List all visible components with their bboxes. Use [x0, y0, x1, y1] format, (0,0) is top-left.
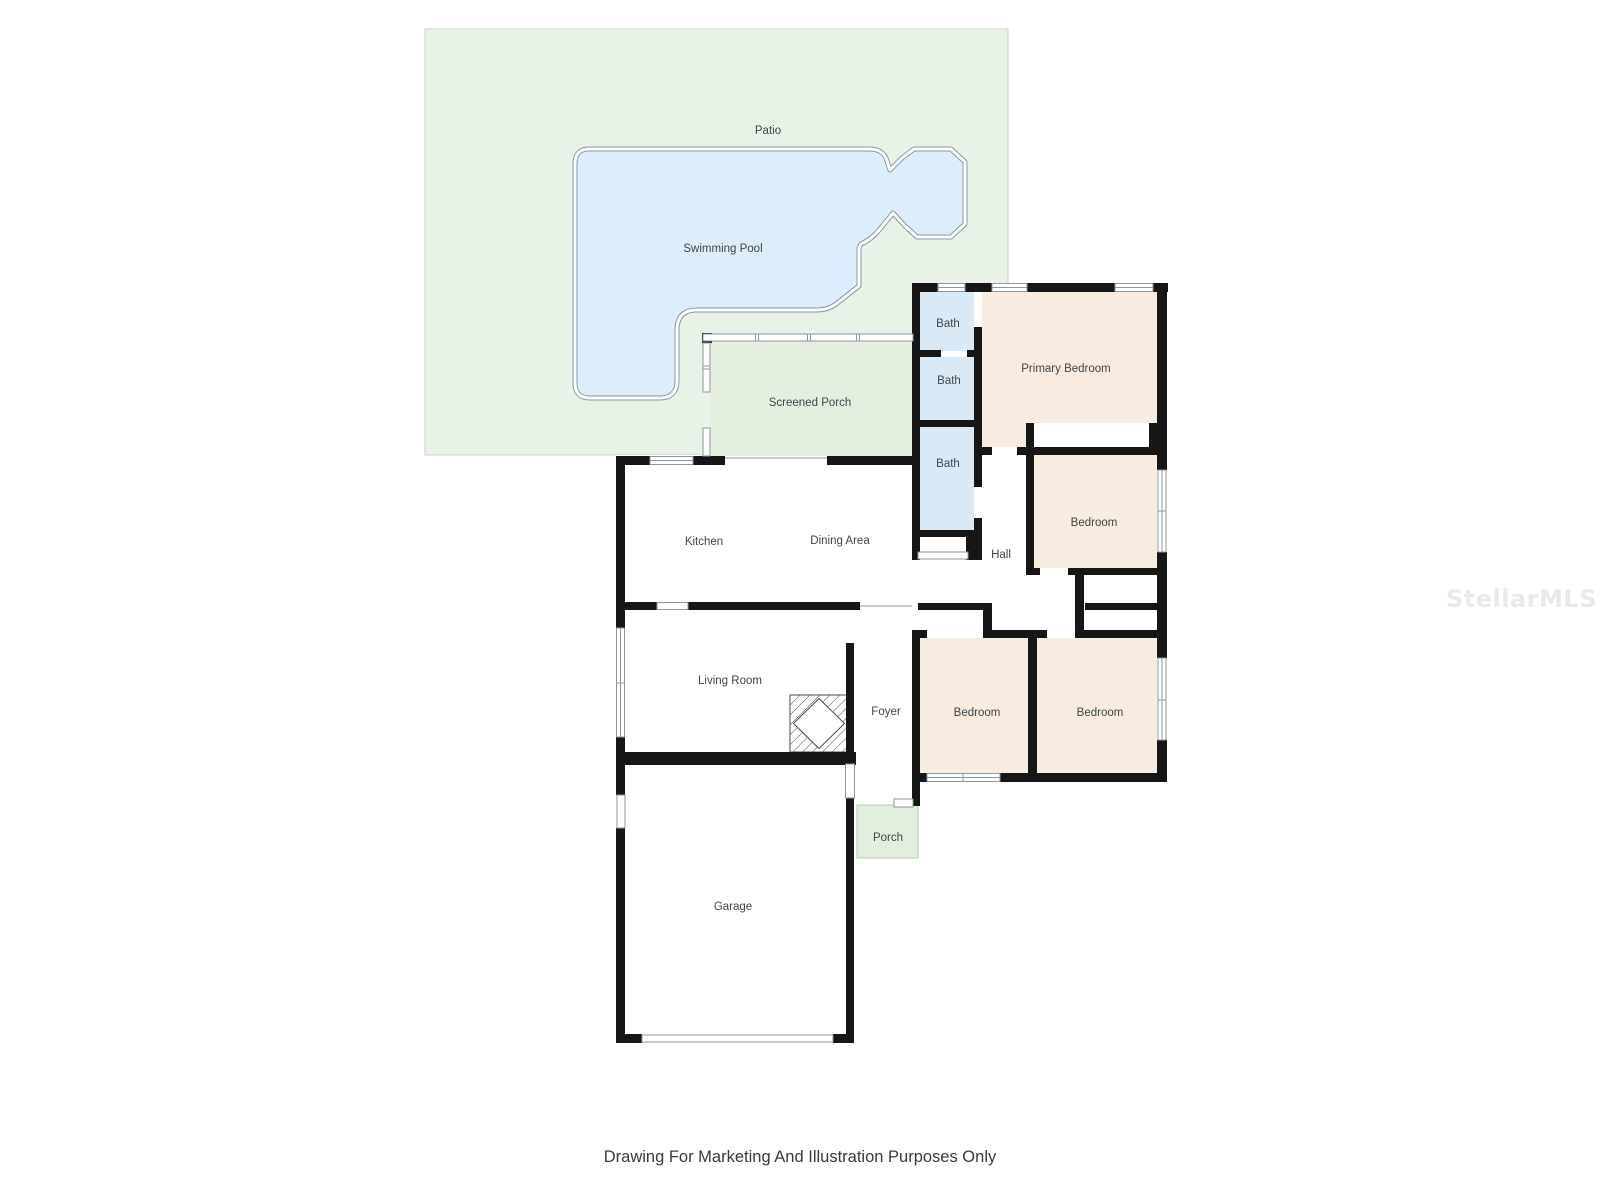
- garage-door-opening: [642, 1035, 833, 1042]
- bath-2-area: [920, 357, 974, 420]
- room-label-foyer: Foyer: [871, 706, 901, 718]
- room-label-porch: Porch: [873, 832, 903, 844]
- hall-closet-opening: [918, 552, 968, 559]
- room-label-primary-bedroom: Primary Bedroom: [1021, 363, 1110, 375]
- room-label-bedroom-2: Bedroom: [1071, 517, 1118, 529]
- room-label-swimming-pool: Swimming Pool: [683, 243, 762, 255]
- room-label-living-room: Living Room: [698, 675, 762, 687]
- floor-plan-drawing: Patio Swimming Pool Screened Porch Bath …: [0, 0, 1600, 1200]
- bedroom-3-area: [920, 638, 1028, 773]
- window-bedroom3-south: [927, 774, 1000, 782]
- window-bedroom2-east: [1158, 470, 1166, 552]
- room-label-kitchen: Kitchen: [685, 536, 723, 548]
- window-bath-north: [938, 284, 965, 292]
- bath-3-area: [920, 427, 974, 530]
- front-door: [894, 799, 913, 807]
- kitchen-living-opening: [657, 603, 688, 610]
- foyer-garage-door: [846, 764, 855, 798]
- fireplace-hatch: [790, 695, 848, 752]
- garage-side-door: [617, 795, 625, 828]
- room-label-bath-3: Bath: [936, 458, 960, 470]
- room-label-screened-porch: Screened Porch: [769, 397, 851, 409]
- room-label-patio: Patio: [755, 125, 781, 137]
- floor-plan-page: Patio Swimming Pool Screened Porch Bath …: [0, 0, 1600, 1200]
- room-label-garage: Garage: [714, 901, 752, 913]
- window-kitchen-north: [650, 457, 693, 465]
- disclaimer-text: Drawing For Marketing And Illustration P…: [604, 1148, 997, 1166]
- window-bedroom4-east: [1158, 658, 1166, 740]
- stellar-mls-watermark: StellarMLS: [1446, 585, 1597, 613]
- room-label-bedroom-4: Bedroom: [1077, 707, 1124, 719]
- window-living-west: [617, 628, 625, 737]
- window-primary-north-1: [992, 284, 1027, 292]
- room-label-bath-1: Bath: [936, 318, 960, 330]
- primary-bedroom-area-lower: [982, 423, 1026, 447]
- bedroom-2-area: [1034, 455, 1157, 568]
- window-primary-north-2: [1115, 284, 1153, 292]
- primary-bedroom-area: [982, 291, 1157, 423]
- room-label-dining-area: Dining Area: [810, 535, 870, 547]
- room-label-bath-2: Bath: [937, 375, 961, 387]
- bedroom-4-area: [1037, 638, 1157, 773]
- room-label-bedroom-3: Bedroom: [954, 707, 1001, 719]
- room-label-hall: Hall: [991, 549, 1011, 561]
